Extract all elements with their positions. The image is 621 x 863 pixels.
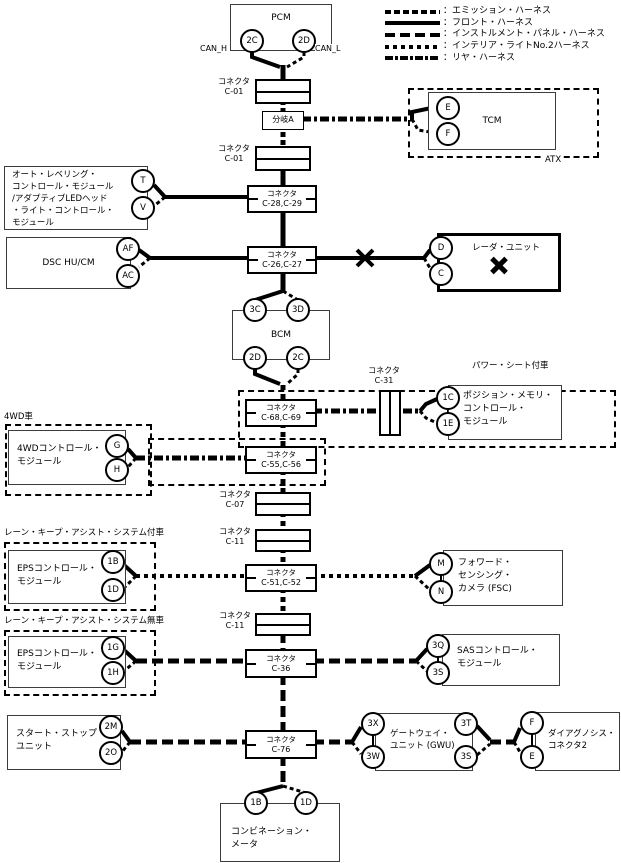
pin-cm-1b: 1B xyxy=(244,791,268,815)
pin-pcm-2c: 2C xyxy=(240,29,264,53)
legend-label: ：エミッション・ハーネス xyxy=(443,6,551,17)
pin-diag-f: F xyxy=(520,711,544,735)
branch-a-box: 分岐A xyxy=(262,111,304,130)
connector-c01-lower-label: コネクタ C-01 xyxy=(214,144,254,164)
pin-bcm-2c: 2C xyxy=(286,346,310,370)
lane-keep-without-region-label: レーン・キープ・アシスト・システム無車 xyxy=(2,616,166,627)
connector-code: C-26,C-27 xyxy=(262,260,302,270)
pin-gwu-3t: 3T xyxy=(454,712,478,736)
wire-gwu-3x xyxy=(352,727,361,742)
connector-word: コネクタ xyxy=(362,366,406,376)
legend-label: ：リヤ・ハーネス xyxy=(443,53,515,64)
connector-c55-c56: コネクタ C-55,C-56 xyxy=(245,446,317,474)
wire-fsc-n xyxy=(415,576,430,590)
tcm-label: TCM xyxy=(482,115,501,127)
pin-ssu-2m: 2M xyxy=(99,715,123,739)
wire-diag-f xyxy=(514,728,520,742)
connector-code: C-11 xyxy=(216,537,254,547)
connector-c76: コネクタ C-76 xyxy=(245,730,317,759)
diagnosis-connector2-label: ダイアグノシス・ コネクタ2 xyxy=(536,713,619,752)
wire-pcm-canl xyxy=(287,52,304,67)
pin-pcm-2d: 2D xyxy=(292,29,316,53)
connector-word: コネクタ xyxy=(266,403,296,413)
pin-diag-e: E xyxy=(520,745,544,769)
connector-c01-lower xyxy=(255,146,311,171)
dsc-box: DSC HU/CM xyxy=(6,237,131,289)
legend-row-emission: ：エミッション・ハーネス xyxy=(385,6,605,18)
pin-pmc-1c: 1C xyxy=(436,386,460,410)
wiring-diagram: ：エミッション・ハーネス ：フロント・ハーネス ：インストルメント・パネル・ハー… xyxy=(0,0,621,863)
connector-code: C-36 xyxy=(272,664,291,674)
connector-code: C-51,C-52 xyxy=(261,578,301,588)
auto-leveling-module-label: オート・レベリング・ コントロール・モジュール /アダプティブLEDヘッド ・ラ… xyxy=(5,167,147,229)
lane-keep-with-region-label: レーン・キープ・アシスト・システム付車 xyxy=(2,528,166,539)
pin-pmc-1e: 1E xyxy=(436,412,460,436)
pin-alm-v: V xyxy=(131,196,155,220)
connector-code: C-07 xyxy=(216,500,254,510)
instrument-panel-harness-line-sample xyxy=(385,33,440,37)
pin-radar-c: C xyxy=(429,262,453,286)
wire-ssu-2m xyxy=(122,731,130,742)
legend-row-rear: ：リヤ・ハーネス xyxy=(385,52,605,64)
pin-alm-t: T xyxy=(131,169,155,193)
connector-divider xyxy=(257,540,309,542)
pin-bcm-2d: 2D xyxy=(243,346,267,370)
auto-leveling-module-box: オート・レベリング・ コントロール・モジュール /アダプティブLEDヘッド ・ラ… xyxy=(4,166,148,230)
wire-gwu-3s xyxy=(477,744,490,755)
awd-region-label: 4WD車 xyxy=(2,412,35,423)
legend-label: ：インテリア・ライトNo.2ハーネス xyxy=(443,41,590,52)
pin-sas-3s: 3S xyxy=(426,661,450,685)
pin-gwu-3s: 3S xyxy=(454,745,478,769)
pin-gwu-3w: 3W xyxy=(361,745,385,769)
pin-tcm-f: F xyxy=(436,122,460,146)
wire-bcm-2c xyxy=(287,369,298,384)
connector-word: コネクタ xyxy=(216,490,254,500)
connector-code: C-55,C-56 xyxy=(261,460,301,470)
pin-awd-g: G xyxy=(105,434,129,458)
can-h-label: CAN_H xyxy=(200,44,227,54)
interior-light-harness-line-sample xyxy=(385,45,440,49)
pin-ssu-2o: 2O xyxy=(99,741,123,765)
pin-dsc-ac: AC xyxy=(116,264,140,288)
pin-cm-1d: 1D xyxy=(294,791,318,815)
connector-word: コネクタ xyxy=(266,568,296,578)
pin-gwu-3x: 3X xyxy=(361,712,385,736)
pin-fsc-m: M xyxy=(429,552,453,576)
connector-c07-label: コネクタ C-07 xyxy=(216,490,254,510)
legend-label: ：フロント・ハーネス xyxy=(443,18,533,29)
pin-tcm-e: E xyxy=(436,96,460,120)
connector-c11-upper-label: コネクタ C-11 xyxy=(216,527,254,547)
connector-word: コネクタ xyxy=(214,77,254,87)
connector-c01-upper-label: コネクタ C-01 xyxy=(214,77,254,97)
pin-dsc-af: AF xyxy=(116,237,140,261)
emission-harness-line-sample xyxy=(385,10,440,14)
connector-code: C-11 xyxy=(216,621,254,631)
connector-c28-c29: コネクタ C-28,C-29 xyxy=(247,185,317,213)
pin-eps1-1d: 1D xyxy=(101,578,125,602)
wire-gwu-3w xyxy=(352,742,361,754)
atx-region-label: ATX xyxy=(543,155,563,166)
connector-c36: コネクタ C-36 xyxy=(245,649,317,678)
connector-divider xyxy=(257,624,309,626)
wire-gwu-3t xyxy=(477,726,490,740)
connector-divider xyxy=(257,91,309,93)
wire-awd-g xyxy=(128,449,136,458)
position-memory-module-label: ポジション・メモリ・ コントロール・ モジュール xyxy=(449,386,561,429)
sas-module-label: SASコントロール・ モジュール xyxy=(443,635,559,671)
wire-sas-3q xyxy=(416,649,427,661)
wire-ssu-2o xyxy=(122,742,130,752)
wire-pmc-1c xyxy=(420,399,437,411)
wire-dsc-ac xyxy=(139,258,150,267)
position-memory-module-box: ポジション・メモリ・ コントロール・ モジュール xyxy=(448,385,562,440)
wire-bcm-2d xyxy=(255,369,280,384)
connector-c01-upper xyxy=(255,79,311,104)
connector-c26-c27: コネクタ C-26,C-27 xyxy=(247,246,317,274)
connector-word: コネクタ xyxy=(216,527,254,537)
connector-divider xyxy=(257,503,309,505)
connector-word: コネクタ xyxy=(214,144,254,154)
dsc-label: DSC HU/CM xyxy=(42,257,94,269)
fsc-box: フォワード・ センシング・ カメラ (FSC) xyxy=(443,550,563,606)
connector-c68-c69: コネクタ C-68,C-69 xyxy=(245,399,317,427)
connector-divider xyxy=(257,158,309,160)
wire-pcm-canh xyxy=(252,52,280,67)
combination-meter-label: コンビネーション・ メータ xyxy=(221,804,339,852)
pin-radar-d: D xyxy=(429,236,453,260)
pin-awd-h: H xyxy=(105,458,129,482)
legend-row-front: ：フロント・ハーネス xyxy=(385,18,605,30)
legend-row-interior-light: ：インテリア・ライトNo.2ハーネス xyxy=(385,41,605,53)
wire-fsc-m xyxy=(415,565,430,576)
connector-code: C-28,C-29 xyxy=(262,199,302,209)
radar-disconnected-x-icon xyxy=(490,256,508,274)
legend-row-instrument-panel: ：インストルメント・パネル・ハーネス xyxy=(385,29,605,41)
connector-word: コネクタ xyxy=(267,189,297,199)
connector-c51-c52: コネクタ C-51,C-52 xyxy=(245,564,317,592)
connector-c11-upper xyxy=(255,529,311,552)
pin-fsc-n: N xyxy=(429,580,453,604)
wire-radar-c xyxy=(424,258,430,268)
harness-legend: ：エミッション・ハーネス ：フロント・ハーネス ：インストルメント・パネル・ハー… xyxy=(385,6,605,64)
connector-c11-lower-label: コネクタ C-11 xyxy=(216,611,254,631)
pin-bcm-3c: 3C xyxy=(243,298,267,322)
can-l-label: CAN_L xyxy=(315,44,341,54)
wire-awd-h xyxy=(128,458,136,467)
pin-eps2-1h: 1H xyxy=(101,661,125,685)
radar-unit-label: レーダ・ユニット xyxy=(440,236,558,254)
connector-word: コネクタ xyxy=(266,735,296,745)
connector-code: C-01 xyxy=(214,154,254,164)
connector-c31 xyxy=(379,390,401,436)
connector-code: C-31 xyxy=(362,376,406,386)
diagnosis-connector2-box: ダイアグノシス・ コネクタ2 xyxy=(535,712,620,771)
connector-c11-lower xyxy=(255,613,311,636)
pin-sas-3q: 3Q xyxy=(426,634,450,658)
connector-word: コネクタ xyxy=(266,450,296,460)
bcm-label: BCM xyxy=(271,329,291,341)
rear-harness-line-sample xyxy=(385,56,440,60)
connector-code: C-01 xyxy=(214,87,254,97)
connector-c31-label: コネクタ C-31 xyxy=(362,366,406,386)
connector-word: コネクタ xyxy=(266,654,296,664)
pin-bcm-3d: 3D xyxy=(286,298,310,322)
fsc-label: フォワード・ センシング・ カメラ (FSC) xyxy=(444,551,562,596)
power-seat-region-label: パワー・シート付車 xyxy=(470,361,551,372)
connector-code: C-76 xyxy=(272,745,291,755)
front-harness-line-sample xyxy=(385,21,440,25)
pin-eps1-1b: 1B xyxy=(101,550,125,574)
wire-pmc-1e xyxy=(420,411,437,423)
wire-dsc-af xyxy=(139,250,247,258)
connector-word: コネクタ xyxy=(216,611,254,621)
wire-diag-e xyxy=(514,742,520,752)
sas-module-box: SASコントロール・ モジュール xyxy=(442,634,560,686)
wire-alm-t xyxy=(154,185,247,197)
combination-meter-box: コンビネーション・ メータ xyxy=(220,803,340,862)
pin-eps2-1g: 1G xyxy=(101,636,125,660)
legend-label: ：インストルメント・パネル・ハーネス xyxy=(443,29,605,40)
connector-code: C-68,C-69 xyxy=(261,413,301,423)
connector-c07 xyxy=(255,492,311,516)
pcm-label: PCM xyxy=(271,12,290,24)
connector-divider xyxy=(389,392,391,434)
wire-alm-v xyxy=(154,197,165,206)
connector-word: コネクタ xyxy=(267,250,297,260)
